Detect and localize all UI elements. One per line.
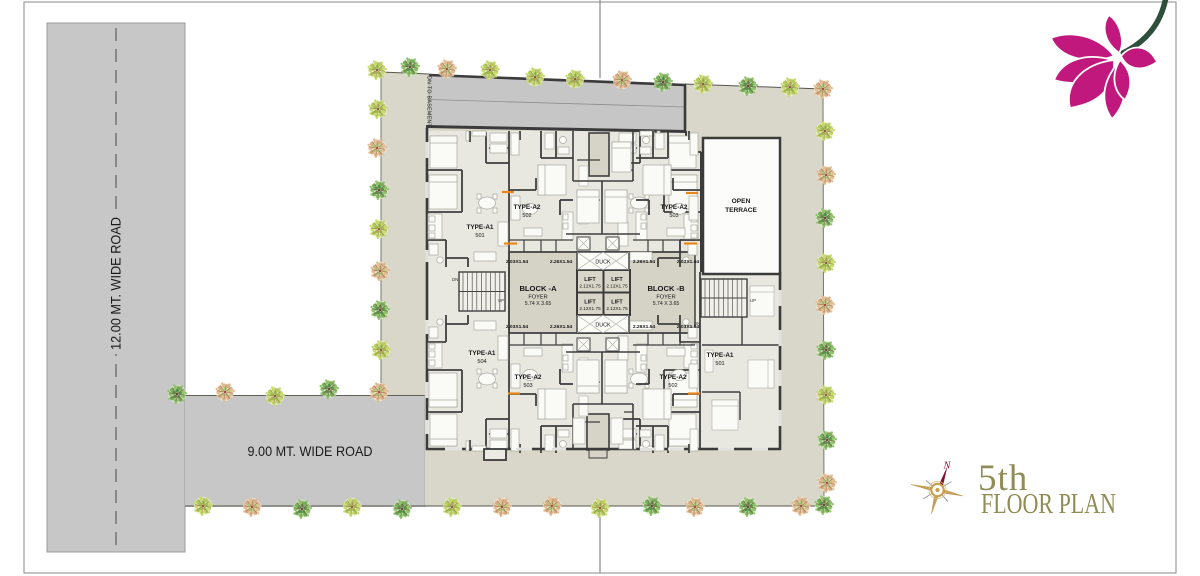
svg-text:FOYER: FOYER [528,295,547,301]
svg-text:UP: UP [750,298,756,303]
svg-text:2.03X1.54: 2.03X1.54 [506,324,529,330]
svg-text:TYPE-A2: TYPE-A2 [661,204,688,211]
svg-text:TYPE-A2: TYPE-A2 [514,204,541,211]
svg-text:OPEN: OPEN [732,198,751,205]
svg-text:FOYER: FOYER [656,295,675,301]
svg-text:TYPE-A1: TYPE-A1 [707,352,734,359]
svg-text:BLOCK -B: BLOCK -B [647,284,685,293]
svg-text:501: 501 [715,361,724,367]
svg-text:LIFT: LIFT [611,300,623,306]
svg-text:2.03X1.54: 2.03X1.54 [506,259,529,265]
svg-text:2.12X1.75: 2.12X1.75 [606,284,628,289]
svg-text:12.00 MT. WIDE ROAD: 12.00 MT. WIDE ROAD [108,217,124,350]
svg-text:2.26X1.54: 2.26X1.54 [633,259,656,265]
svg-text:2.12X1.75: 2.12X1.75 [579,284,601,289]
svg-text:5.74 X 3.65: 5.74 X 3.65 [525,301,552,307]
svg-text:9.00 MT. WIDE ROAD: 9.00 MT. WIDE ROAD [248,443,373,459]
svg-text:LIFT: LIFT [611,277,623,283]
svg-text:504: 504 [477,359,486,365]
svg-text:DN: DN [452,277,458,282]
svg-text:2.12X1.75: 2.12X1.75 [606,306,628,311]
svg-text:2.26X1.54: 2.26X1.54 [550,259,573,265]
svg-text:501: 501 [475,233,484,239]
svg-text:DN TO BASEMENT: DN TO BASEMENT [426,76,432,128]
svg-text:LIFT: LIFT [584,300,596,306]
svg-text:502: 502 [522,213,531,219]
svg-text:503: 503 [669,213,678,219]
svg-text:2.26X1.54: 2.26X1.54 [550,324,573,330]
svg-text:BLOCK -A: BLOCK -A [519,284,557,293]
svg-text:2.03X1.54: 2.03X1.54 [677,259,700,265]
svg-text:TYPE-A1: TYPE-A1 [467,224,494,231]
svg-text:TYPE-A1: TYPE-A1 [469,350,496,357]
svg-text:502: 502 [668,383,677,389]
svg-text:TYPE-A2: TYPE-A2 [515,374,542,381]
svg-text:2.12X1.75: 2.12X1.75 [579,306,601,311]
svg-text:N: N [943,461,952,472]
svg-text:FLOOR PLAN: FLOOR PLAN [981,489,1116,520]
svg-text:LIFT: LIFT [584,277,596,283]
svg-text:5.74 X 3.65: 5.74 X 3.65 [653,301,680,307]
svg-text:TERRACE: TERRACE [725,207,757,214]
svg-text:2.03X1.54: 2.03X1.54 [677,324,700,330]
svg-text:DUCK: DUCK [595,323,611,329]
svg-text:UP: UP [498,298,504,303]
svg-text:503: 503 [523,383,532,389]
svg-text:DUCK: DUCK [595,260,611,266]
svg-text:TYPE-A2: TYPE-A2 [660,374,687,381]
svg-text:2.26X1.54: 2.26X1.54 [633,324,656,330]
